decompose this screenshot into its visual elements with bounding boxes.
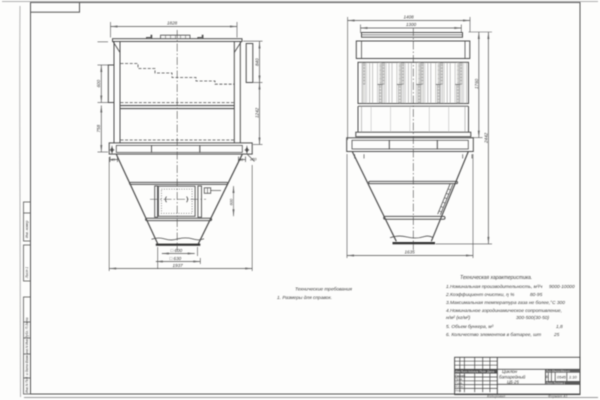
- svg-text:Техническая характеристика.: Техническая характеристика.: [460, 275, 532, 281]
- svg-text:Лист 1: Лист 1: [25, 267, 29, 279]
- svg-text:600: 600: [96, 79, 101, 87]
- svg-text:□ 630: □ 630: [170, 256, 182, 261]
- svg-text:Копировал:: Копировал:: [487, 394, 506, 398]
- svg-text:1408: 1408: [404, 15, 415, 20]
- svg-text:□ 600: □ 600: [171, 248, 183, 253]
- svg-text:3.Максимальная температура г: 3.Максимальная температура газа не более…: [446, 300, 565, 306]
- svg-text:1,8: 1,8: [556, 324, 563, 330]
- svg-text:840: 840: [254, 58, 259, 66]
- svg-text:1828: 1828: [167, 21, 178, 26]
- svg-text:80-95: 80-95: [530, 292, 543, 298]
- svg-text:1300: 1300: [406, 22, 417, 27]
- svg-text:1.Номинальная производительно: 1.Номинальная производительность, м³/ч: [446, 284, 543, 290]
- svg-text:н/м² (кг/м²): н/м² (кг/м²): [446, 315, 471, 321]
- svg-text:⌀50: ⌀50: [250, 158, 257, 162]
- svg-text:1. Размеры для справок.: 1. Размеры для справок.: [277, 295, 332, 301]
- svg-text:1937: 1937: [173, 263, 184, 268]
- svg-text:4.Номинальное аэродинамическо: 4.Номинальное аэродинамическое сопротивл…: [446, 308, 562, 314]
- svg-text:0545: 0545: [557, 374, 567, 379]
- svg-text:ЦБ-25: ЦБ-25: [507, 380, 519, 385]
- svg-text:5. Объем бункера, м³: 5. Объем бункера, м³: [446, 324, 494, 330]
- svg-text:1242: 1242: [254, 107, 259, 118]
- svg-text:1760: 1760: [474, 78, 479, 89]
- svg-text:40: 40: [239, 158, 243, 162]
- svg-text:1635: 1635: [405, 250, 416, 255]
- svg-text:25: 25: [553, 332, 560, 338]
- svg-text:Технические требования: Технические требования: [295, 287, 352, 293]
- svg-text:Лист Листов 1: Лист Листов 1: [545, 381, 566, 385]
- svg-text:758: 758: [96, 124, 101, 132]
- svg-text:Формат А1: Формат А1: [548, 394, 568, 398]
- svg-text:2442: 2442: [483, 132, 488, 144]
- svg-text:2.Коэффициент очистки, η %: 2.Коэффициент очистки, η %: [445, 292, 515, 298]
- svg-text:Циклон: Циклон: [502, 369, 518, 374]
- svg-text:40: 40: [111, 158, 115, 162]
- svg-text:1:10: 1:10: [569, 374, 578, 379]
- svg-text:300-500(30-50): 300-500(30-50): [516, 315, 549, 321]
- svg-text:600: 600: [228, 198, 233, 205]
- svg-text:9000-10000: 9000-10000: [549, 284, 575, 290]
- svg-text:Лит Масса Масшт: Лит Масса Масшт: [545, 369, 571, 373]
- svg-text:6. Количество элементов в б: 6. Количество элементов в батарее, шт: [446, 332, 541, 338]
- svg-text:Утв.: Утв.: [455, 389, 462, 393]
- svg-text:Инв.N Под. и дата Взам.инв.N И: Инв.N Под. и дата Взам.инв.N Инв.дубл. П…: [25, 317, 29, 393]
- svg-text:Инв. номер: Инв. номер: [25, 221, 29, 238]
